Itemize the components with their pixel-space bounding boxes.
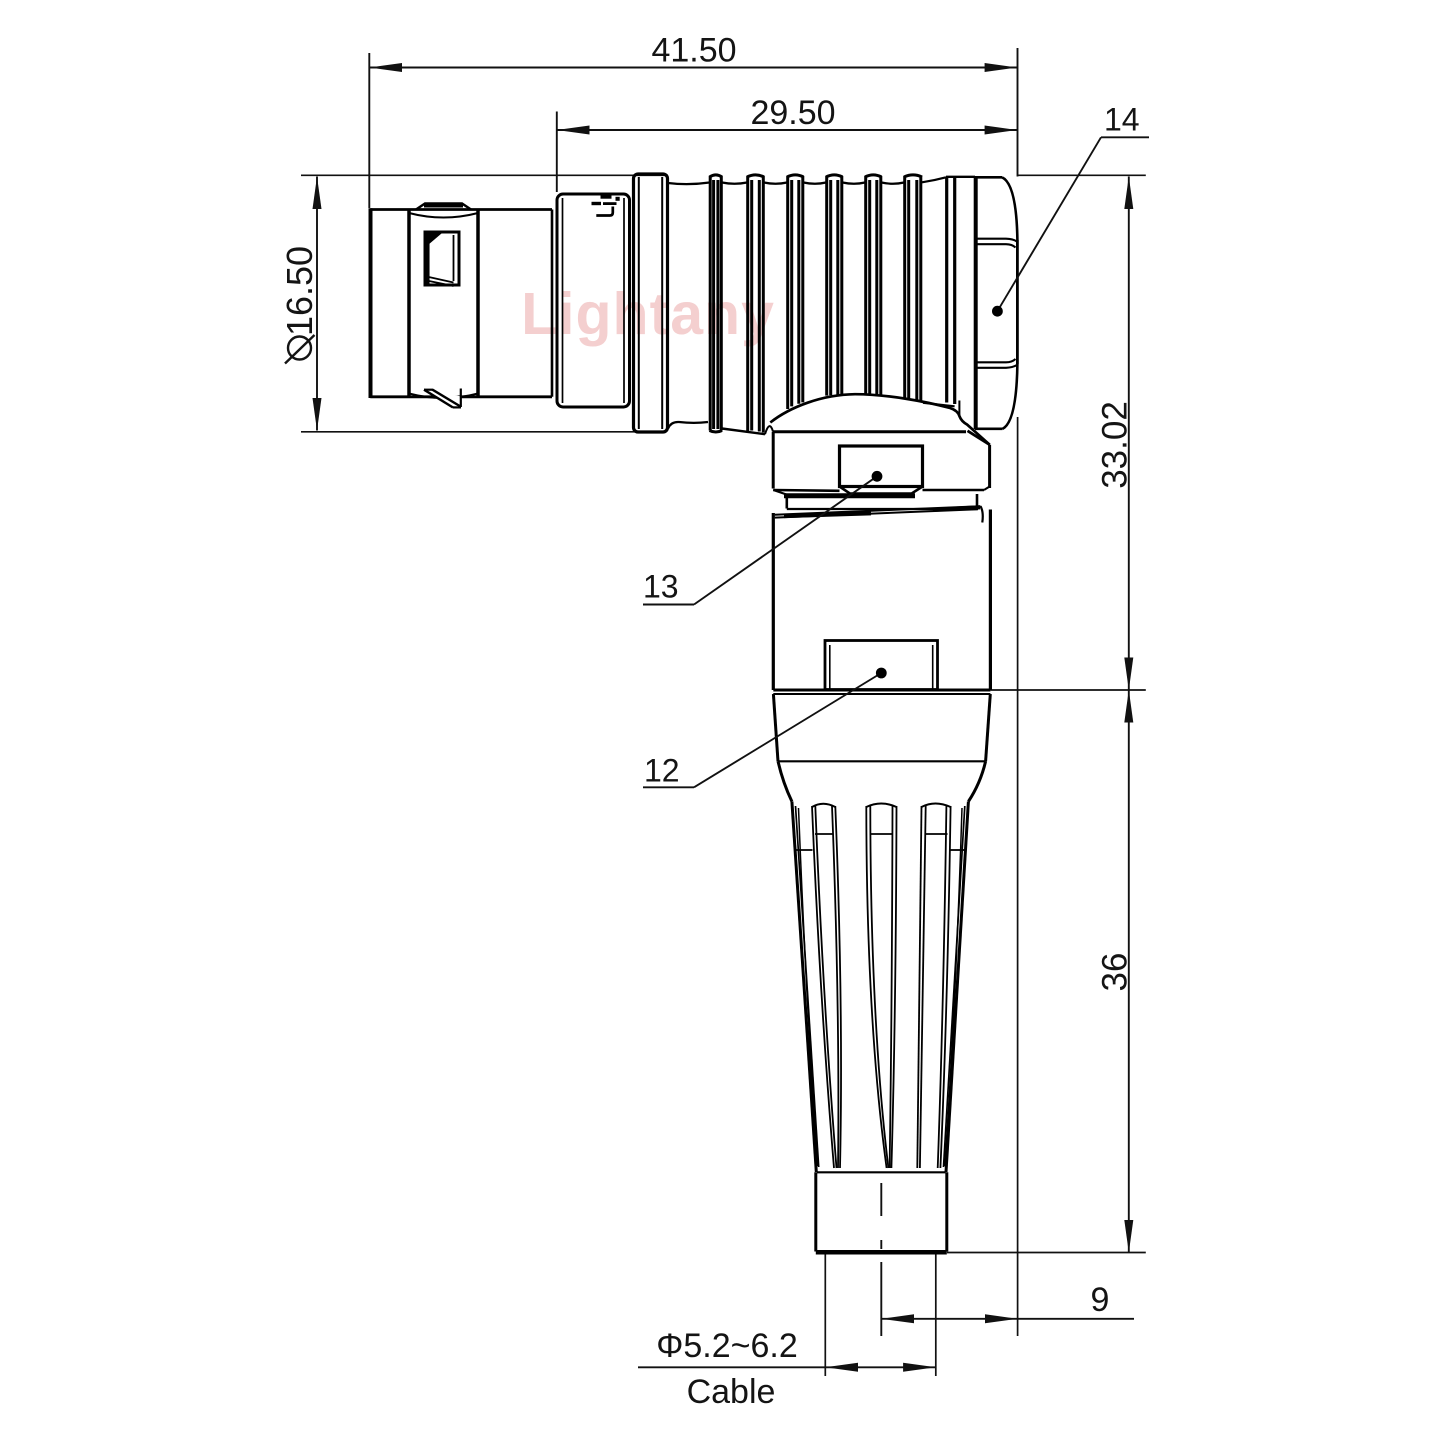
svg-text:13: 13 <box>643 569 679 605</box>
svg-text:36: 36 <box>1096 953 1135 992</box>
svg-text:14: 14 <box>1104 102 1140 138</box>
svg-text:Cable: Cable <box>687 1373 776 1411</box>
svg-text:33.02: 33.02 <box>1096 401 1135 489</box>
svg-text:16.50: 16.50 <box>279 246 320 336</box>
svg-text:Φ5.2~6.2: Φ5.2~6.2 <box>656 1327 798 1365</box>
svg-text:Lightany: Lightany <box>521 281 775 347</box>
svg-text:9: 9 <box>1091 1281 1110 1319</box>
svg-text:29.50: 29.50 <box>750 94 835 132</box>
svg-text:41.50: 41.50 <box>651 32 736 70</box>
svg-text:12: 12 <box>644 753 680 789</box>
